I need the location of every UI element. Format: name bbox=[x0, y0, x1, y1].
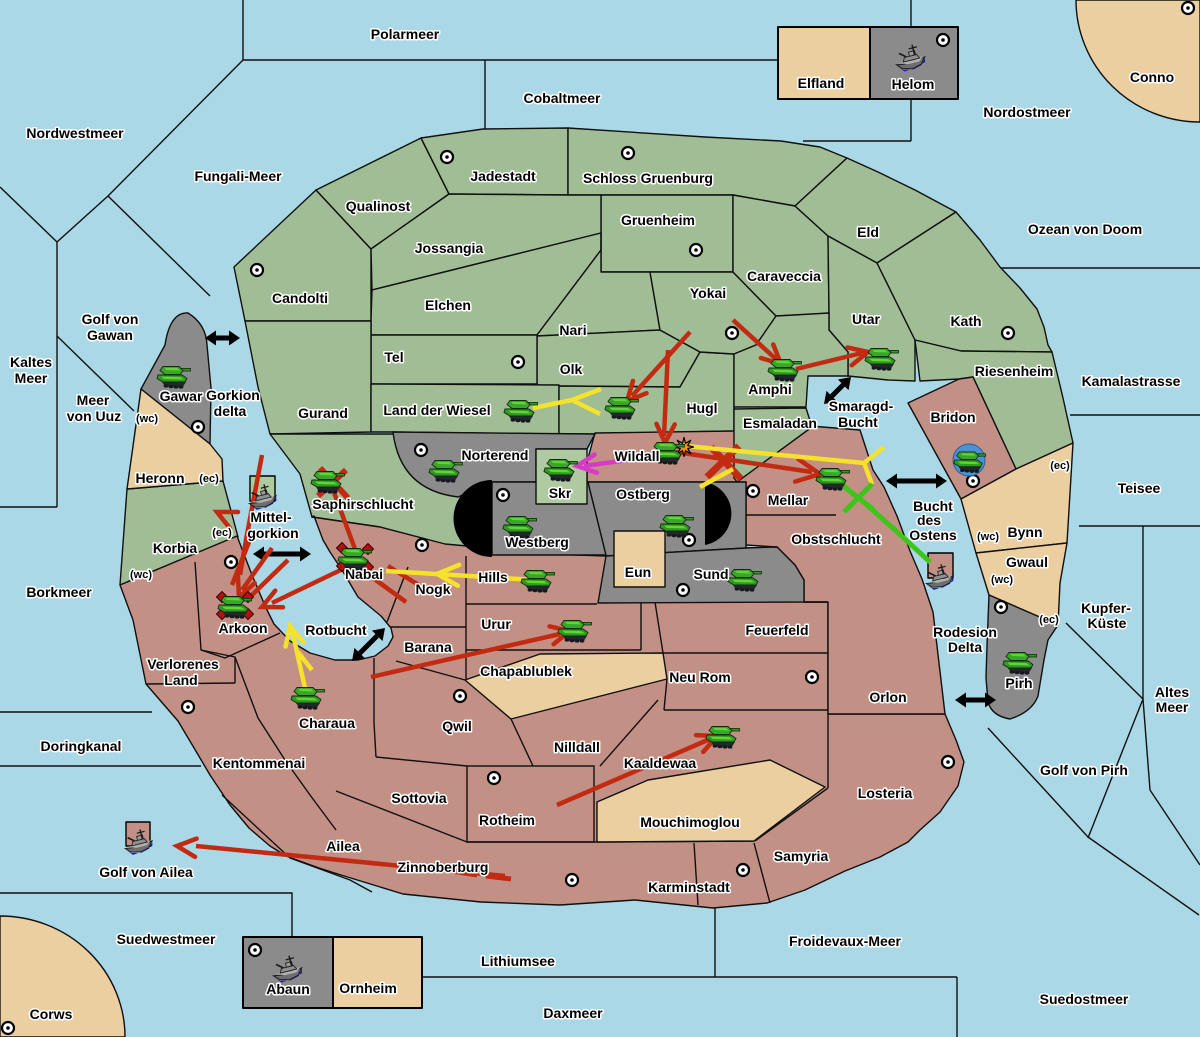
svg-text:Ostens: Ostens bbox=[909, 527, 957, 543]
svg-text:Qualinost: Qualinost bbox=[346, 198, 411, 214]
svg-text:Norterend: Norterend bbox=[462, 447, 529, 463]
svg-text:(ec): (ec) bbox=[1050, 460, 1070, 472]
svg-text:Nogk: Nogk bbox=[416, 581, 451, 597]
svg-text:Helom: Helom bbox=[892, 76, 935, 92]
svg-text:Fungali-Meer: Fungali-Meer bbox=[194, 168, 282, 184]
svg-text:Rotbucht: Rotbucht bbox=[305, 622, 367, 638]
svg-text:Mellar: Mellar bbox=[768, 492, 809, 508]
svg-text:Esmaladan: Esmaladan bbox=[743, 415, 817, 431]
svg-text:Amphi: Amphi bbox=[748, 381, 792, 397]
svg-text:Chapablublek: Chapablublek bbox=[480, 663, 572, 679]
svg-text:Golf von Ailea: Golf von Ailea bbox=[99, 864, 193, 880]
svg-text:(wc): (wc) bbox=[130, 569, 152, 581]
svg-text:Riesenheim: Riesenheim bbox=[975, 363, 1054, 379]
svg-text:Obstschlucht: Obstschlucht bbox=[791, 531, 881, 547]
svg-text:Kaaldewaa: Kaaldewaa bbox=[624, 755, 697, 771]
svg-text:Ornheim: Ornheim bbox=[339, 980, 397, 996]
svg-text:Conno: Conno bbox=[1130, 69, 1174, 85]
svg-text:Teisee: Teisee bbox=[1118, 480, 1161, 496]
svg-text:gorkion: gorkion bbox=[247, 525, 298, 541]
svg-text:Rotheim: Rotheim bbox=[479, 812, 535, 828]
svg-text:Jossangia: Jossangia bbox=[415, 240, 484, 256]
svg-text:Polarmeer: Polarmeer bbox=[371, 26, 440, 42]
svg-text:Jadestadt: Jadestadt bbox=[470, 168, 536, 184]
svg-text:Abaun: Abaun bbox=[266, 981, 310, 997]
svg-text:Bridon: Bridon bbox=[930, 409, 975, 425]
svg-text:Arkoon: Arkoon bbox=[219, 620, 268, 636]
svg-text:Borkmeer: Borkmeer bbox=[26, 584, 92, 600]
svg-text:Golf von: Golf von bbox=[82, 311, 139, 327]
svg-text:(wc): (wc) bbox=[991, 574, 1013, 586]
svg-text:Elfland: Elfland bbox=[798, 75, 845, 91]
svg-text:Elchen: Elchen bbox=[425, 297, 471, 313]
svg-text:Froidevaux-Meer: Froidevaux-Meer bbox=[789, 933, 902, 949]
svg-text:Gawan: Gawan bbox=[87, 327, 133, 343]
svg-text:Land der Wiesel: Land der Wiesel bbox=[383, 402, 490, 418]
svg-text:Sottovia: Sottovia bbox=[391, 790, 446, 806]
svg-text:Nari: Nari bbox=[559, 322, 586, 338]
svg-text:Ailea: Ailea bbox=[326, 838, 360, 854]
svg-text:Suedostmeer: Suedostmeer bbox=[1040, 991, 1129, 1007]
svg-text:Bucht: Bucht bbox=[838, 414, 878, 430]
svg-text:Olk: Olk bbox=[560, 361, 583, 377]
svg-text:Utar: Utar bbox=[852, 311, 881, 327]
svg-text:Qwil: Qwil bbox=[442, 718, 472, 734]
svg-text:Kath: Kath bbox=[950, 313, 981, 329]
svg-text:Wildall: Wildall bbox=[615, 448, 660, 464]
svg-text:delta: delta bbox=[214, 403, 247, 419]
svg-text:Kamalastrasse: Kamalastrasse bbox=[1082, 373, 1181, 389]
svg-text:Doringkanal: Doringkanal bbox=[41, 738, 122, 754]
svg-text:Ozean von Doom: Ozean von Doom bbox=[1028, 221, 1142, 237]
svg-text:Tel: Tel bbox=[384, 349, 403, 365]
svg-text:Eun: Eun bbox=[625, 564, 651, 580]
svg-text:Küste: Küste bbox=[1088, 615, 1127, 631]
svg-text:Nilldall: Nilldall bbox=[554, 739, 600, 755]
svg-text:Kentommenai: Kentommenai bbox=[213, 755, 306, 771]
svg-text:(ec): (ec) bbox=[212, 527, 232, 539]
svg-text:(ec): (ec) bbox=[1039, 614, 1059, 626]
svg-text:Meer: Meer bbox=[15, 370, 48, 386]
svg-text:Hills: Hills bbox=[478, 569, 508, 585]
svg-text:Mittel-: Mittel- bbox=[250, 509, 292, 525]
svg-text:(wc): (wc) bbox=[977, 531, 999, 543]
svg-text:Lithiumsee: Lithiumsee bbox=[481, 953, 555, 969]
svg-text:Eld: Eld bbox=[857, 224, 879, 240]
svg-text:(wc): (wc) bbox=[136, 413, 158, 425]
svg-text:Pirh: Pirh bbox=[1005, 675, 1032, 691]
svg-text:Nabai: Nabai bbox=[345, 566, 383, 582]
svg-text:Golf von Pirh: Golf von Pirh bbox=[1040, 762, 1128, 778]
svg-text:Kupfer-: Kupfer- bbox=[1081, 600, 1131, 616]
svg-text:Orlon: Orlon bbox=[869, 689, 906, 705]
svg-text:Feuerfeld: Feuerfeld bbox=[745, 622, 808, 638]
svg-text:Gruenheim: Gruenheim bbox=[621, 212, 695, 228]
svg-text:Altes: Altes bbox=[1155, 684, 1189, 700]
svg-text:Karminstadt: Karminstadt bbox=[648, 879, 730, 895]
svg-text:Sund: Sund bbox=[694, 566, 729, 582]
svg-text:Meer: Meer bbox=[1156, 699, 1189, 715]
svg-text:Daxmeer: Daxmeer bbox=[543, 1005, 603, 1021]
svg-text:Delta: Delta bbox=[948, 639, 982, 655]
svg-text:Cobaltmeer: Cobaltmeer bbox=[523, 90, 601, 106]
svg-text:Nordwestmeer: Nordwestmeer bbox=[26, 125, 124, 141]
svg-text:Schloss Gruenburg: Schloss Gruenburg bbox=[583, 170, 713, 186]
svg-text:Verlorenes: Verlorenes bbox=[147, 656, 219, 672]
svg-text:Westberg: Westberg bbox=[505, 534, 569, 550]
svg-text:von Uuz: von Uuz bbox=[67, 408, 121, 424]
svg-text:Gwaul: Gwaul bbox=[1006, 554, 1048, 570]
svg-text:Neu Rom: Neu Rom bbox=[669, 669, 730, 685]
svg-text:Smaragd-: Smaragd- bbox=[829, 398, 894, 414]
svg-text:des: des bbox=[917, 512, 941, 528]
svg-text:Losteria: Losteria bbox=[858, 785, 913, 801]
svg-text:Heronn: Heronn bbox=[136, 470, 185, 486]
svg-text:Corws: Corws bbox=[30, 1006, 73, 1022]
svg-text:Skr: Skr bbox=[549, 485, 572, 501]
svg-text:Urur: Urur bbox=[481, 616, 511, 632]
svg-text:Gawar: Gawar bbox=[160, 388, 203, 404]
svg-text:Bynn: Bynn bbox=[1008, 524, 1043, 540]
svg-text:Candolti: Candolti bbox=[272, 290, 328, 306]
svg-text:Saphirschlucht: Saphirschlucht bbox=[312, 496, 413, 512]
svg-text:Kaltes: Kaltes bbox=[10, 354, 52, 370]
svg-text:Suedwestmeer: Suedwestmeer bbox=[117, 931, 216, 947]
svg-text:Land: Land bbox=[164, 672, 197, 688]
svg-text:Nordostmeer: Nordostmeer bbox=[983, 104, 1071, 120]
svg-text:Hugl: Hugl bbox=[686, 400, 717, 416]
svg-text:Korbia: Korbia bbox=[153, 540, 198, 556]
svg-text:Zinnoberburg: Zinnoberburg bbox=[398, 859, 489, 875]
svg-text:Samyria: Samyria bbox=[774, 848, 829, 864]
svg-text:Rodesion: Rodesion bbox=[933, 624, 997, 640]
svg-text:Barana: Barana bbox=[404, 639, 452, 655]
svg-text:Mouchimoglou: Mouchimoglou bbox=[640, 814, 740, 830]
svg-text:(ec): (ec) bbox=[199, 473, 219, 485]
svg-text:Meer: Meer bbox=[77, 392, 110, 408]
svg-text:Ostberg: Ostberg bbox=[616, 486, 670, 502]
svg-text:Yokai: Yokai bbox=[690, 285, 726, 301]
svg-text:Gurand: Gurand bbox=[298, 405, 348, 421]
svg-text:Charaua: Charaua bbox=[299, 715, 355, 731]
svg-text:Caraveccia: Caraveccia bbox=[747, 268, 821, 284]
svg-text:Gorkion: Gorkion bbox=[206, 387, 260, 403]
